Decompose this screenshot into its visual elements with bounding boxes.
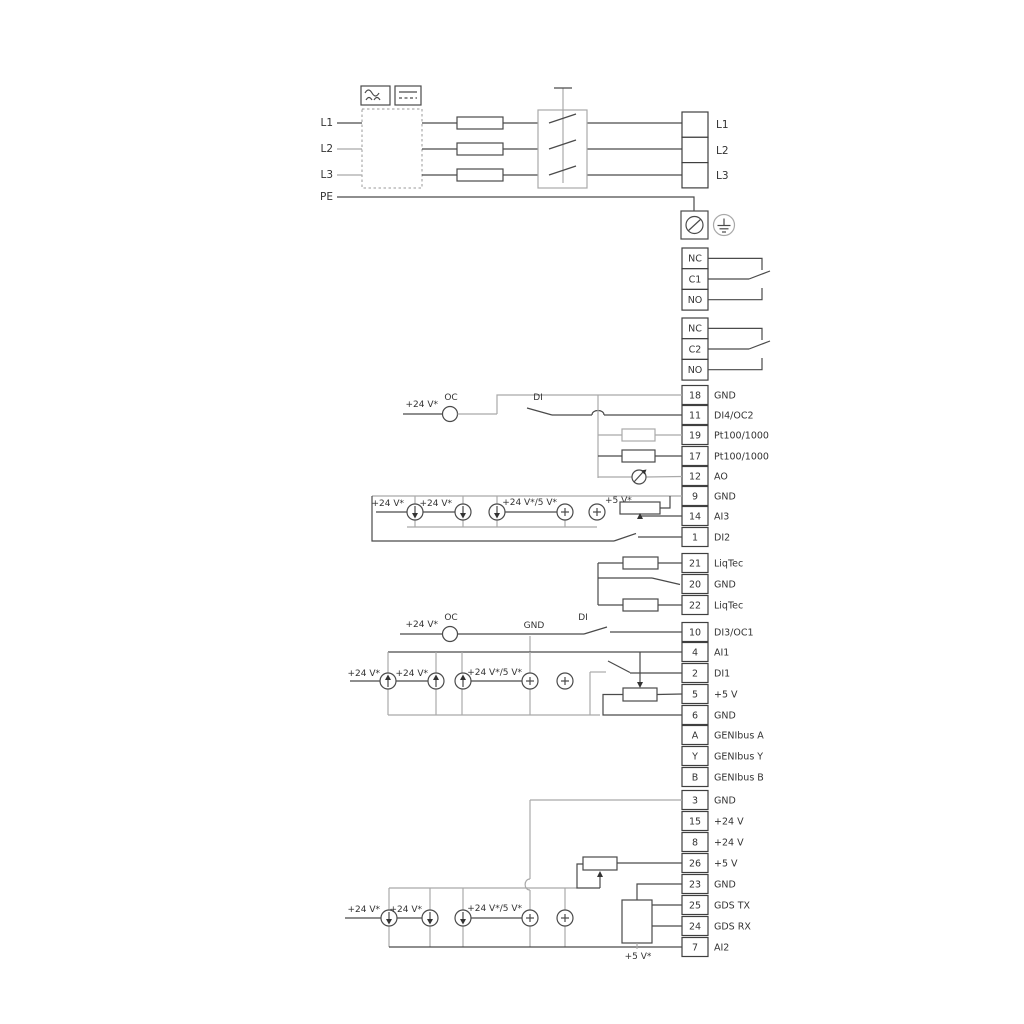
label-24v: +24 V* <box>405 620 438 630</box>
terminal-number: 22 <box>689 600 701 611</box>
label-5v: +5 V* <box>625 952 652 962</box>
relay1-block: NC C1 NO <box>682 248 770 310</box>
terminal-label: GENIbus A <box>714 730 764 741</box>
terminal-cell <box>682 137 708 162</box>
terminal-number: 5 <box>692 689 698 700</box>
label-24v-5v: +24 V*/5 V* <box>467 668 522 678</box>
terminal-label: DI3/OC1 <box>714 627 754 638</box>
relay2-contact <box>708 328 770 369</box>
power-section: L1 L2 L3 PE <box>320 86 734 239</box>
disconnect-switch <box>538 88 587 188</box>
label-l2-out: L2 <box>716 145 729 157</box>
terminal-label: GND <box>714 491 736 502</box>
terminal-label: DI1 <box>714 668 730 679</box>
ai1-di1-circuit: +24 V* +24 V* +24 V*/5 V* <box>347 636 682 715</box>
terminal-number: B <box>692 772 699 783</box>
terminal-label: AI3 <box>714 511 729 522</box>
terminal-label: +5 V <box>714 858 738 869</box>
liqtec-sensor-1 <box>623 557 658 569</box>
label-24v: +24 V* <box>347 669 380 679</box>
fuse-l2 <box>457 143 503 155</box>
di2-switch-contact <box>614 534 636 542</box>
terminal-number: 1 <box>692 532 698 543</box>
label-24v: +24 V* <box>419 499 452 509</box>
terminal-label: GENIbus Y <box>714 751 763 762</box>
label-24v-5v: +24 V*/5 V* <box>467 904 522 914</box>
terminal-number: 7 <box>692 942 698 953</box>
filter-dashed-box <box>362 109 422 188</box>
terminal-number: 6 <box>692 710 698 721</box>
relay2-no: NO <box>688 365 703 376</box>
fuse-l1 <box>457 117 503 129</box>
terminal-label: GND <box>714 579 736 590</box>
terminal-number: 21 <box>689 558 701 569</box>
terminal-label: GENIbus B <box>714 772 764 783</box>
voltage-source-icon <box>589 504 605 520</box>
wiper-arrow <box>597 871 603 877</box>
label-oc: OC <box>444 613 457 623</box>
di-switch-contact <box>527 408 552 415</box>
current-source-icon <box>380 673 396 689</box>
liqtec-block: 21 LiqTec 20 GND 22 LiqTec <box>598 554 743 615</box>
relay1-nc: NC <box>688 254 702 265</box>
voltage-source-icon <box>522 910 538 926</box>
terminal-label: Pt100/1000 <box>714 430 769 441</box>
terminal-number: 20 <box>689 579 701 590</box>
pt100-sensor-2 <box>622 450 655 462</box>
io-strip-1: 18 GND 11 DI4/OC2 19 Pt100/1000 17 Pt100… <box>682 386 769 547</box>
terminal-number: 10 <box>689 627 701 638</box>
liqtec-switch-contact <box>652 578 680 585</box>
wiring-diagram-page: L1 L2 L3 PE <box>0 0 1024 1024</box>
terminal-label: +5 V <box>714 689 738 700</box>
label-l3-in: L3 <box>320 169 333 181</box>
di3-oc1-circuit: +24 V* OC GND DI <box>400 613 682 642</box>
ao-meter-icon <box>632 470 647 485</box>
io-strip-3: 3 GND 15 +24 V 8 +24 V 26 +5 V 23 GND 25… <box>682 791 751 957</box>
terminal-label: AO <box>714 471 728 482</box>
terminal-label: +24 V <box>714 816 744 827</box>
label-l1-out: L1 <box>716 119 729 131</box>
terminal-number: 19 <box>689 430 701 441</box>
terminal-label: AI2 <box>714 942 729 953</box>
current-source-icon <box>422 910 438 926</box>
potentiometer <box>623 688 657 701</box>
terminal-label: Pt100/1000 <box>714 451 769 462</box>
relay1-c1: C1 <box>689 274 702 285</box>
terminal-label: LiqTec <box>714 558 743 569</box>
relay2-nc: NC <box>688 324 702 335</box>
voltage-source-icon <box>557 504 573 520</box>
label-gnd: GND <box>524 621 545 631</box>
pe-screw-terminal <box>681 211 708 239</box>
di3-switch-contact <box>584 627 607 634</box>
label-di: DI <box>533 393 543 403</box>
di4-oc2-circuit: +24 V* OC DI <box>403 393 682 484</box>
terminal-cell <box>682 163 708 188</box>
phase-wires <box>337 123 682 175</box>
terminal-number: A <box>692 730 699 741</box>
dc-symbol-box <box>395 86 421 105</box>
terminal-number: 26 <box>689 858 701 869</box>
label-l1-in: L1 <box>320 117 333 129</box>
wiring-diagram: L1 L2 L3 PE <box>0 0 1024 1024</box>
terminal-number: 3 <box>692 795 698 806</box>
terminal-number: Y <box>691 751 698 762</box>
terminal-label: AI1 <box>714 647 729 658</box>
terminal-number: 25 <box>689 900 701 911</box>
label-24v: +24 V* <box>405 400 438 410</box>
pe-ground <box>337 197 735 239</box>
open-collector-icon <box>443 407 458 422</box>
wiper-arrow <box>637 682 643 688</box>
terminal-label: GND <box>714 795 736 806</box>
terminal-number: 15 <box>689 816 701 827</box>
ac-symbol-box <box>361 86 390 105</box>
terminal-label: +24 V <box>714 837 744 848</box>
terminal-number: 14 <box>689 511 701 522</box>
gds-sensor-box <box>622 900 652 943</box>
terminal-number: 24 <box>689 921 701 932</box>
terminal-number: 12 <box>689 471 701 482</box>
relay2-c2: C2 <box>689 344 702 355</box>
relay2-block: NC C2 NO <box>682 318 770 380</box>
label-l2-in: L2 <box>320 143 333 155</box>
liqtec-sensor-wiring <box>598 557 682 611</box>
current-source-icon <box>428 673 444 689</box>
current-source-icon <box>455 504 471 520</box>
earth-icon <box>714 215 735 236</box>
label-24v: +24 V* <box>395 669 428 679</box>
label-l3-out: L3 <box>716 170 729 182</box>
liqtec-sensor-2 <box>623 599 658 611</box>
terminal-number: 8 <box>692 837 698 848</box>
voltage-source-icon <box>522 673 538 689</box>
label-24v: +24 V* <box>389 905 422 915</box>
label-24v: +24 V* <box>347 905 380 915</box>
terminal-label: DI4/OC2 <box>714 410 754 421</box>
terminal-label: GDS TX <box>714 900 751 911</box>
terminal-label: GND <box>714 390 736 401</box>
terminal-label: DI2 <box>714 532 730 543</box>
open-collector-icon <box>443 627 458 642</box>
mains-terminal-block: L1 L2 L3 <box>682 112 729 188</box>
label-24v: +24 V* <box>371 499 404 509</box>
label-pe-in: PE <box>320 191 333 203</box>
voltage-source-icon <box>557 673 573 689</box>
terminal-number: 23 <box>689 879 701 890</box>
terminal-number: 4 <box>692 647 698 658</box>
fuse-l3 <box>457 169 503 181</box>
di1-switch-contact <box>608 661 630 673</box>
relay1-contact <box>708 258 770 299</box>
label-di: DI <box>578 613 588 623</box>
potentiometer <box>583 857 617 870</box>
terminal-label: GDS RX <box>714 921 751 932</box>
potentiometer <box>620 502 660 514</box>
terminal-number: 18 <box>689 390 701 401</box>
ai2-gds-circuit: +24 V* +24 V* +24 V*/5 V* +5 V* <box>345 800 682 962</box>
terminal-number: 11 <box>689 410 701 421</box>
terminal-cell <box>682 112 708 137</box>
ai3-di2-circuit: +24 V* +24 V* +24 V*/5 V* +5 V* <box>371 496 682 541</box>
label-oc: OC <box>444 393 457 403</box>
terminal-label: GND <box>714 879 736 890</box>
terminal-number: 9 <box>692 491 698 502</box>
terminal-number: 2 <box>692 668 698 679</box>
label-24v-5v: +24 V*/5 V* <box>502 498 557 508</box>
pt100-sensor-1 <box>622 429 655 441</box>
relay1-no: NO <box>688 295 703 306</box>
io-strip-2: 10 DI3/OC1 4 AI1 2 DI1 5 +5 V 6 GND A GE… <box>682 623 764 787</box>
voltage-source-icon <box>557 910 573 926</box>
terminal-number: 17 <box>689 451 701 462</box>
terminal-label: LiqTec <box>714 600 743 611</box>
terminal-label: GND <box>714 710 736 721</box>
